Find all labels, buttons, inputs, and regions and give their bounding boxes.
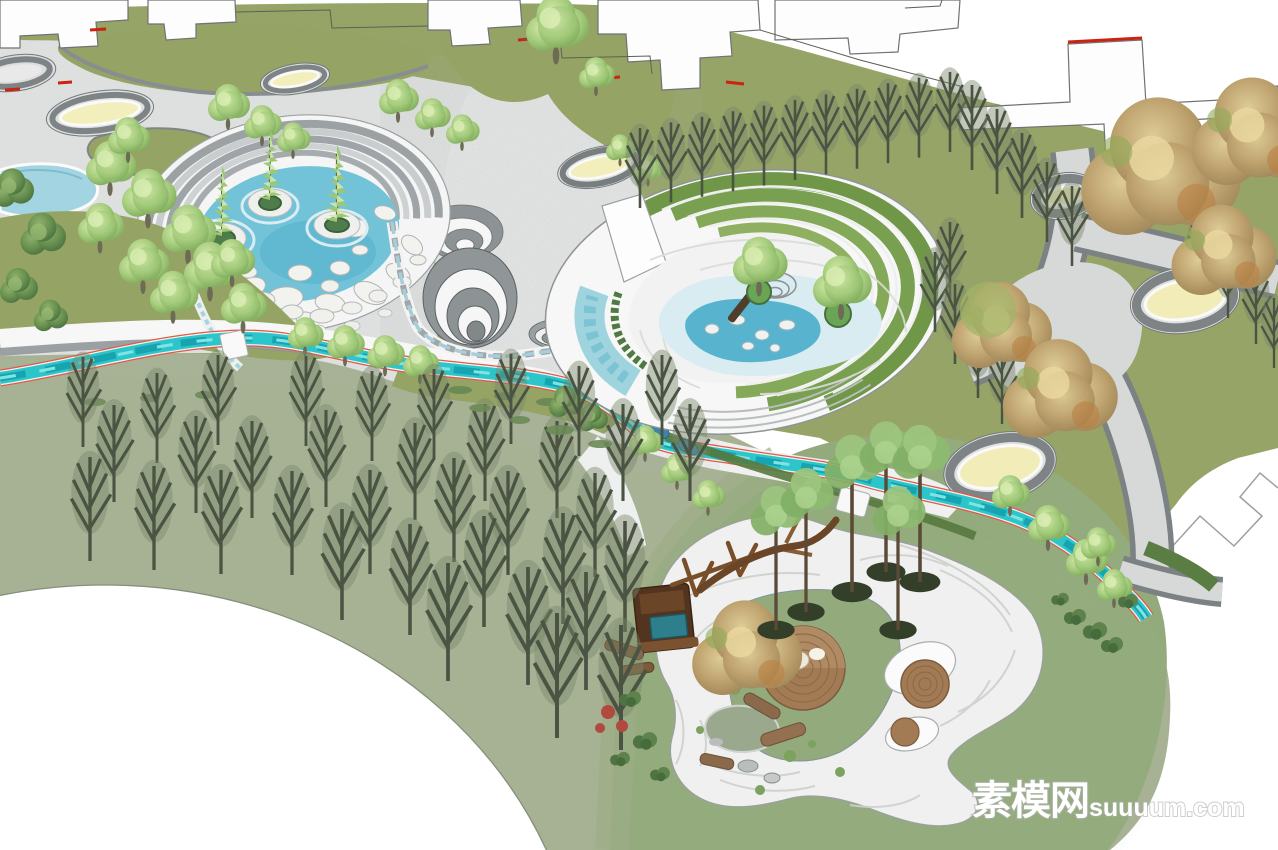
svg-text:suuuum.com: suuuum.com <box>1089 794 1245 822</box>
svg-text:素模网: 素模网 <box>972 779 1089 823</box>
